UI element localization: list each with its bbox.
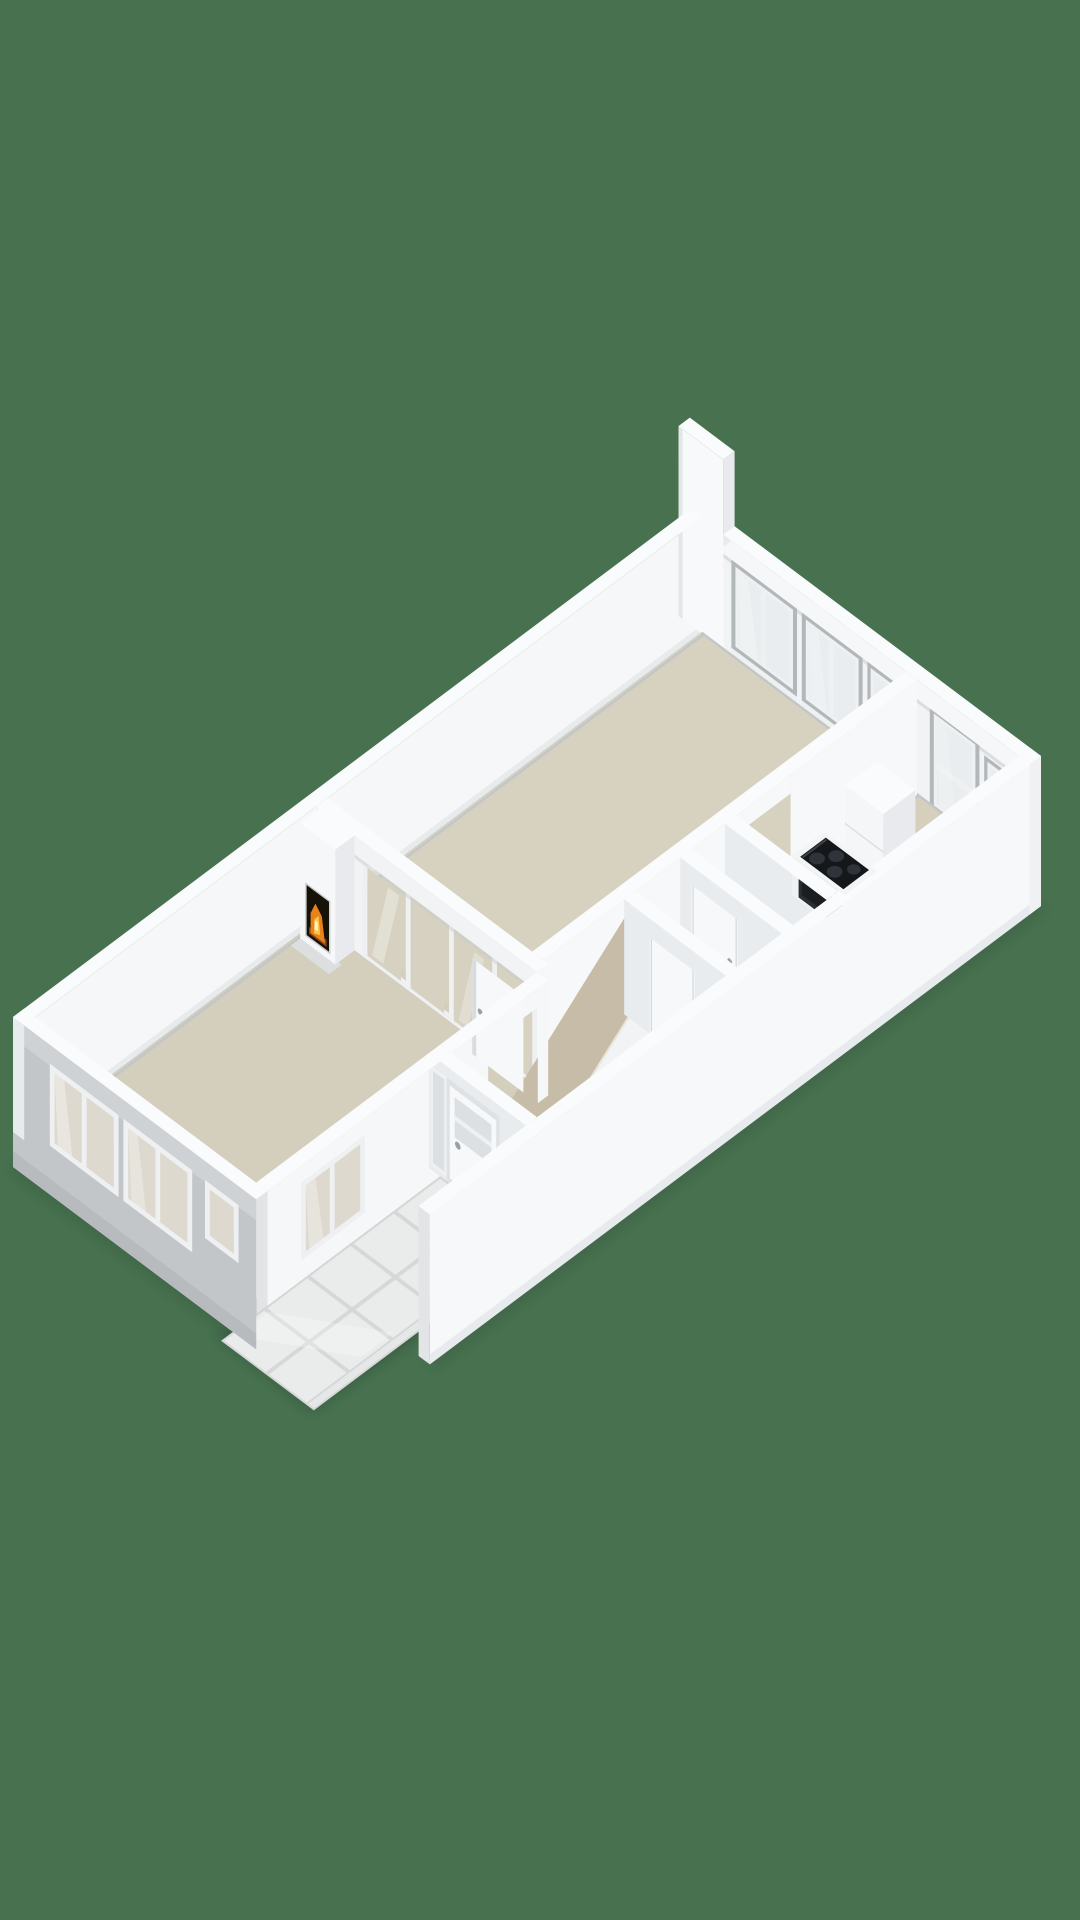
sw-window-1-mullion	[82, 1094, 87, 1168]
partition-post-2	[406, 893, 411, 993]
partition-post-1	[363, 860, 368, 960]
open-door-edge	[472, 958, 476, 1057]
sw-window-2-mullion	[155, 1149, 160, 1223]
west-corner-sliver	[13, 1017, 24, 1140]
partition-post-3	[449, 925, 454, 1025]
southwest-wall-end	[256, 1191, 267, 1314]
northeast-wall-outer-end	[1030, 756, 1041, 914]
floorplan-stage	[0, 0, 1080, 1920]
southeast-wall-end	[419, 1206, 430, 1364]
ne-window-2-mullion	[829, 641, 834, 717]
porch-window-mullion	[330, 1164, 335, 1234]
fireplace-chimney-side	[335, 835, 354, 964]
fin-wall-face	[679, 426, 724, 650]
hall-south-wall-east	[538, 980, 548, 1103]
front-door-sidelight-glass	[433, 1071, 444, 1171]
ne-window-1-mullion	[761, 590, 766, 666]
